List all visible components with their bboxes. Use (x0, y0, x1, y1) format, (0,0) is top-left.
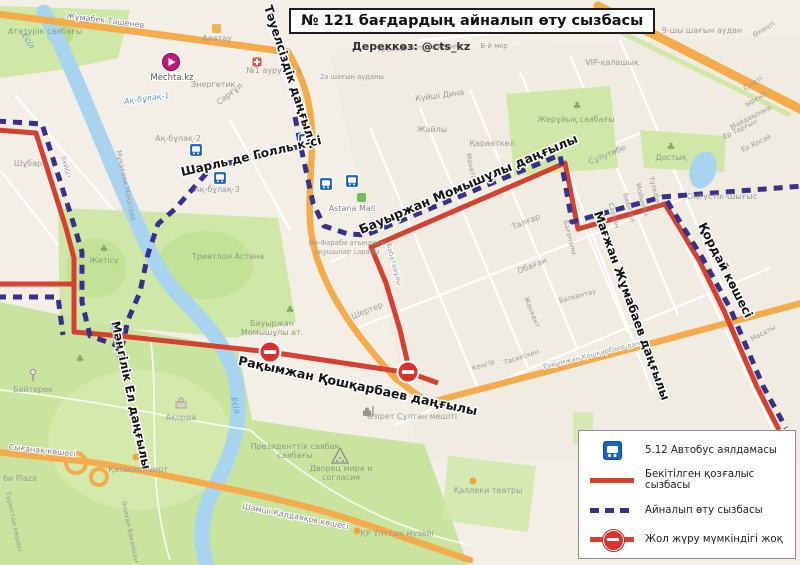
poi-label: согласия (322, 473, 360, 482)
poi-label: Әзірет Сұлтан мешіті (367, 412, 457, 421)
park-label: Момышұлы ат. (241, 328, 303, 337)
legend: 5.12 Автобус аялдамасы Бекітілген қозғал… (578, 430, 796, 559)
poi-label: Әл-Фараби атындағы (308, 239, 386, 247)
legend-label: 5.12 Автобус аялдамасы (645, 445, 777, 456)
astana-mall-icon (357, 193, 366, 202)
source-credit: Дереккөз: @cts_kz (352, 40, 470, 53)
mechta-logo-icon (163, 54, 180, 71)
map-title: № 121 бағдардың айналып өту сызбасы (289, 8, 655, 34)
bus-stop-icon (320, 178, 333, 191)
tree-icon: ♣ (667, 142, 676, 153)
poi-label: Astana Mall (329, 204, 375, 213)
route-map-page: ♣ ♣ ♣ ♣ ♣ (0, 0, 800, 565)
poi-label: ҚР Ұлттық музейі (360, 529, 433, 538)
area-label: Шұбар (14, 159, 42, 168)
area-label: 9-шы шағын аудан (662, 26, 743, 35)
poi-label: Қазақконцерт (108, 465, 168, 474)
area-label: VIP-қалашық (585, 58, 639, 67)
blue-dashed-line-icon (590, 508, 634, 513)
area-label: Ақ-бұлақ-3 (194, 185, 240, 194)
poi-label: Байтерек (13, 385, 53, 394)
park-label: Бауыржан (250, 319, 294, 328)
legend-row-bus-stop: 5.12 Автобус аялдамасы (589, 440, 787, 460)
legend-label: Бекітілген қозғалыс сызбасы (645, 469, 787, 491)
bus-stop-icon (190, 144, 203, 157)
legend-row-detour: Айналып өту сызбасы (589, 500, 787, 520)
tree-icon: ♣ (76, 354, 85, 365)
area-label: Ақ-бұлақ-2 (155, 134, 201, 143)
park-label: Жерұйық саябағы (537, 115, 614, 124)
poi-label: Триатлон Астана (191, 252, 264, 261)
bus-stop-icon (346, 175, 359, 188)
red-solid-line-icon (590, 478, 634, 483)
park-label: Президенттік саябақ (251, 442, 340, 451)
legend-label: Жол жүру мүмкіндігі жоқ (645, 534, 783, 545)
park-label: Жетісу (89, 256, 119, 265)
legend-row-no-entry: Жол жүру мүмкіндігі жоқ (589, 529, 787, 549)
area-label: Қараөткел (470, 139, 515, 148)
tree-icon: ♣ (573, 101, 582, 112)
poi-label: Қаллеки театры (454, 486, 523, 495)
no-entry-icon (603, 530, 624, 551)
legend-row-fixed-route: Бекітілген қозғалыс сызбасы (589, 469, 787, 491)
poi-label: Ақорда (166, 413, 197, 422)
poi-label: Дворец мира и (310, 464, 373, 473)
area-label: 2а шағын ауданы (320, 73, 384, 81)
no-entry-sign (398, 362, 419, 383)
tree-icon: ♣ (100, 244, 109, 255)
area-label: Б-й мкр (480, 42, 507, 50)
park-label: Достық (655, 153, 687, 162)
park-label: Ататүрік саябағы (8, 27, 82, 36)
area-label: Оңтүстік-Шығыс (687, 192, 757, 201)
bus-stop-icon (603, 441, 622, 460)
alatau-poi-icon (212, 24, 221, 33)
area-label: Жайлы (417, 125, 447, 134)
theatre-poi-icon (470, 478, 477, 485)
poi-label: Алатау (202, 34, 232, 43)
park-label: саябағы (278, 451, 313, 460)
mechta-label: Mechta.kz (150, 73, 194, 83)
poi-label: би Plaza (3, 474, 37, 483)
bus-stop-icon (214, 172, 227, 185)
legend-label: Айналып өту сызбасы (645, 505, 763, 516)
tree-icon: ♣ (286, 305, 295, 316)
poi-label: оқушылар сарайы (314, 248, 379, 256)
